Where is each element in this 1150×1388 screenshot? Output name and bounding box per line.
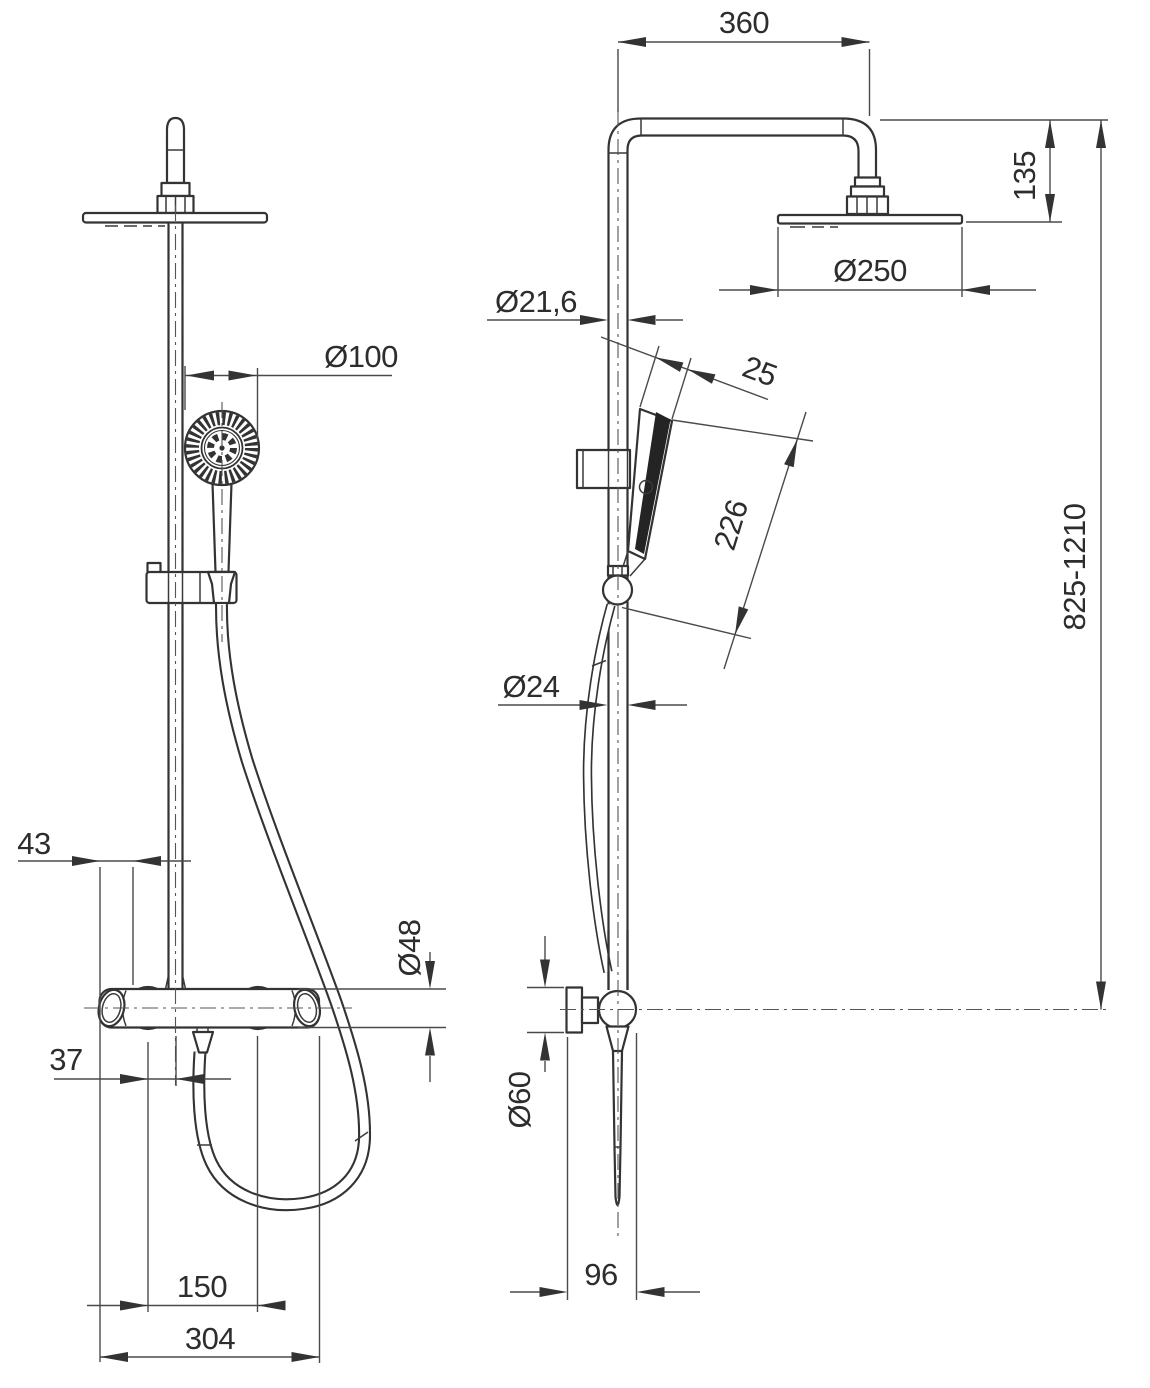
side-handshower-stick	[621, 409, 672, 576]
dim-label-side-handshower-width: 25	[738, 349, 782, 394]
dim-label-front-connection-spacing: 150	[177, 1269, 227, 1304]
dim-label-side-handshower-length: 226	[707, 496, 755, 554]
side-dimensions: 360 135 Ø250 Ø21,6 25 226 Ø24	[487, 5, 1108, 1300]
dim-label-front-outlet-offset: 37	[49, 1042, 82, 1077]
dim-label-side-wall-depth: 96	[584, 1257, 617, 1292]
front-head-ring	[162, 183, 190, 196]
front-view: Ø100 43 Ø48 37 150 304	[17, 118, 446, 1363]
dim-label-side-arm-reach: 360	[719, 5, 769, 40]
dim-label-front-handshower-diameter: Ø100	[324, 339, 398, 374]
dim-label-side-upper-pipe-diameter: Ø21,6	[495, 284, 577, 319]
dim-label-side-flange-diameter: Ø60	[502, 1071, 537, 1128]
dim-label-side-lower-pipe-diameter: Ø24	[502, 669, 559, 704]
front-thermostatic-mixer	[95, 987, 324, 1053]
dim-label-front-mixer-end-offset: 43	[17, 826, 50, 861]
dim-label-front-mixer-width: 304	[185, 1321, 235, 1356]
shower-system-dimension-drawing: Ø100 43 Ø48 37 150 304	[0, 0, 1150, 1388]
front-mixer-outlet	[193, 1032, 213, 1053]
drawing-page: Ø100 43 Ø48 37 150 304	[0, 0, 1150, 1388]
side-mixer	[567, 988, 637, 1206]
side-shower-arm-inner	[628, 136, 859, 178]
front-shower-hose	[197, 604, 368, 1205]
dim-label-side-column-height: 825-1210	[1057, 503, 1092, 630]
side-rain-head-disc	[778, 215, 962, 224]
side-holder-bracket	[577, 450, 630, 488]
dim-label-front-mixer-body-diameter: Ø48	[392, 919, 427, 976]
dim-label-side-head-drop: 135	[1007, 151, 1042, 201]
dim-label-side-head-diameter: Ø250	[833, 253, 907, 288]
side-head-ring-1	[855, 178, 880, 187]
side-head-ring-2	[851, 187, 884, 197]
side-view: 360 135 Ø250 Ø21,6 25 226 Ø24	[487, 5, 1110, 1300]
side-shower-arm-outer	[609, 119, 877, 178]
